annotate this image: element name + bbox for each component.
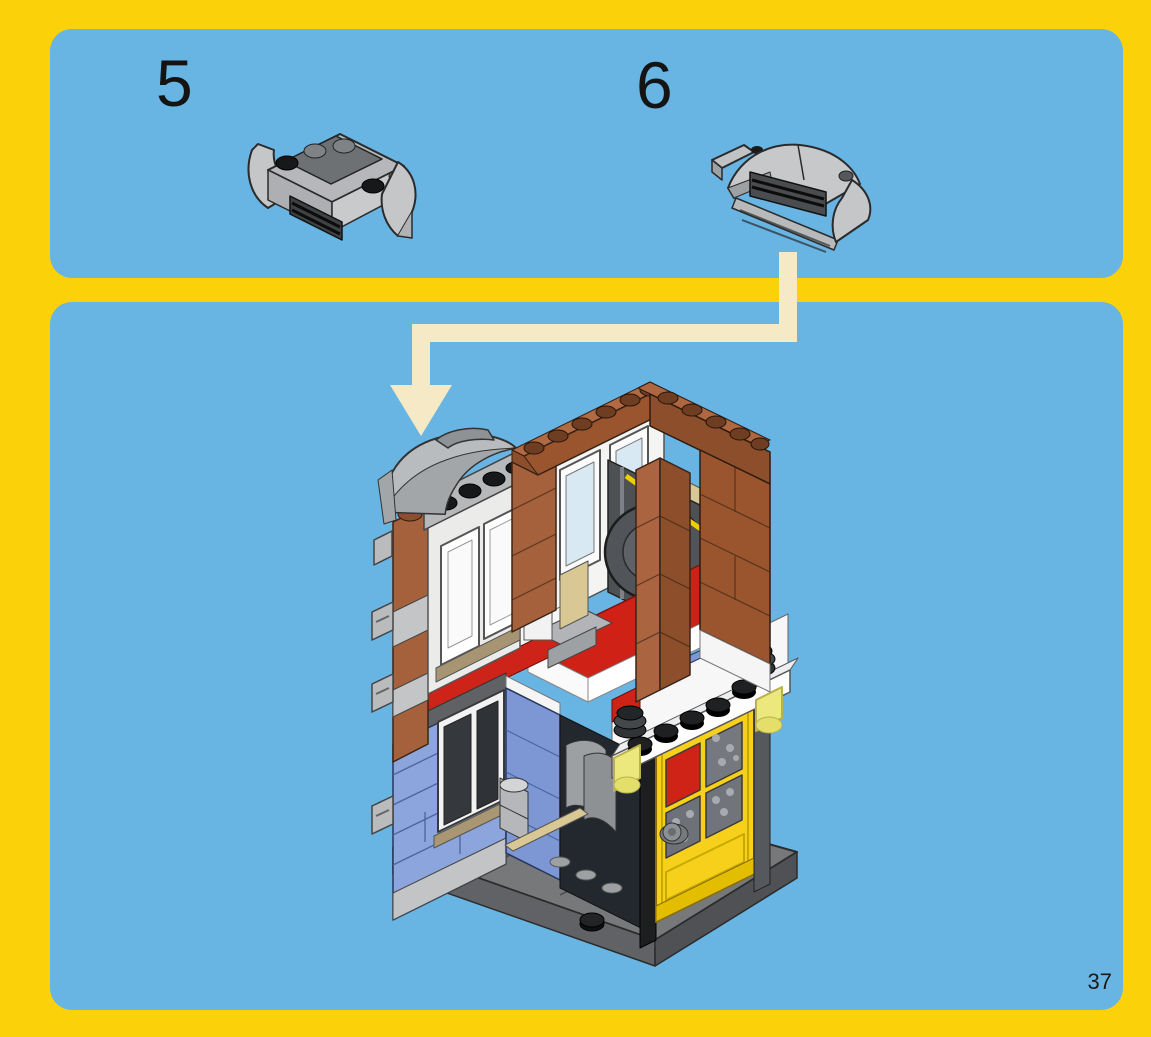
page-number: 37: [1062, 971, 1112, 993]
step-5-label: 5: [156, 50, 192, 116]
instruction-page: { "page": { "type": "lego-building-instr…: [0, 0, 1151, 1037]
steps-panel: [50, 29, 1123, 278]
main-assembly-panel: [50, 302, 1123, 1010]
step-6-label: 6: [636, 52, 672, 118]
